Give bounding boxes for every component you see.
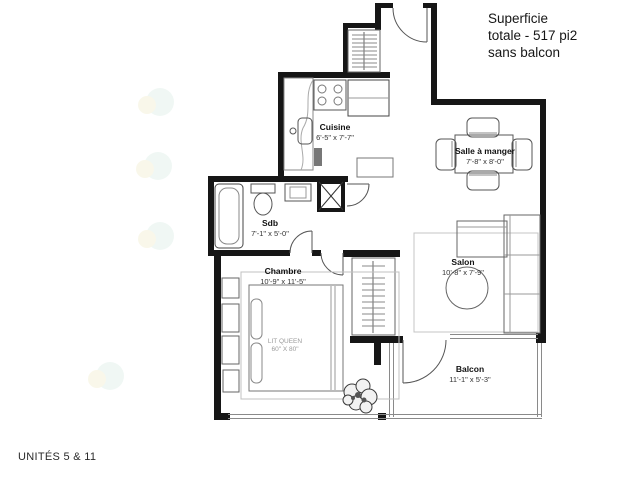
room-label-balcon: Balcon 11'-1" x 5'-3"	[430, 364, 510, 384]
room-label-cuisine: Cuisine 6'-5" x 7'-7"	[295, 122, 375, 142]
room-dims-balcon: 11'-1" x 5'-3"	[430, 375, 510, 384]
room-name-sdb: Sdb	[235, 218, 305, 229]
room-label-sdb: Sdb 7'-1" x 5'-0"	[235, 218, 305, 238]
plant	[343, 379, 377, 413]
room-name-salle-a-manger: Salle à manger	[444, 146, 526, 157]
bed-label-line2: 60" X 80"	[255, 346, 315, 354]
entry-closet	[348, 30, 380, 72]
room-dims-cuisine: 6'-5" x 7'-7"	[295, 133, 375, 142]
units-label: UNITÉS 5 & 11	[18, 451, 96, 463]
room-name-chambre: Chambre	[243, 266, 323, 277]
shaft-x-mark	[319, 182, 343, 210]
bedroom-closet	[352, 258, 395, 335]
plan-linework	[0, 0, 640, 480]
room-dims-sdb: 7'-1" x 5'-0"	[235, 229, 305, 238]
room-name-salon: Salon	[428, 257, 498, 268]
bed-label-line1: LIT QUEEN	[255, 338, 315, 346]
room-dims-chambre: 10'-9" x 11'-5"	[243, 277, 323, 286]
room-dims-salle-a-manger: 7'-8" x 8'-0"	[444, 157, 526, 166]
door-arcs	[290, 8, 446, 383]
room-dims-salon: 10'-8" x 7'-9"	[428, 268, 498, 277]
room-label-salle-a-manger: Salle à manger 7'-8" x 8'-0"	[444, 146, 526, 166]
area-summary: Superficie totale - 517 pi2 sans balcon	[488, 10, 577, 61]
bathroom-fixtures	[215, 184, 311, 248]
area-summary-line3: sans balcon	[488, 44, 577, 61]
bedroom-wall-units	[222, 278, 239, 392]
bed-label: LIT QUEEN 60" X 80"	[255, 338, 315, 355]
room-name-cuisine: Cuisine	[295, 122, 375, 133]
room-label-chambre: Chambre 10'-9" x 11'-5"	[243, 266, 323, 286]
room-name-balcon: Balcon	[430, 364, 510, 375]
floorplan-page: Superficie totale - 517 pi2 sans balcon …	[0, 0, 640, 480]
area-summary-line1: Superficie	[488, 10, 577, 27]
room-label-salon: Salon 10'-8" x 7'-9"	[428, 257, 498, 277]
area-summary-line2: totale - 517 pi2	[488, 27, 577, 44]
